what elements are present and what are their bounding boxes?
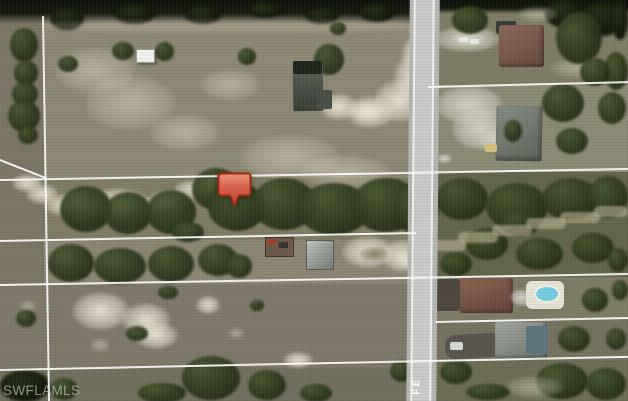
tree-blob — [582, 288, 608, 312]
lanai-structure — [526, 326, 548, 354]
house-roof — [293, 61, 322, 74]
tree-blob — [138, 383, 186, 401]
driveway — [350, 102, 384, 120]
sand-patch — [518, 6, 558, 22]
road-surface — [410, 0, 435, 401]
tree-blob — [440, 360, 472, 384]
house-roof — [460, 278, 513, 313]
dirt-trail — [594, 206, 628, 217]
tree-blob — [58, 56, 78, 72]
tree-blob — [226, 254, 252, 278]
driveway-island — [360, 247, 388, 261]
tree-blob — [238, 48, 256, 65]
tree-blob — [608, 248, 628, 272]
tree-blob — [452, 6, 488, 34]
tree-blob — [158, 286, 178, 299]
tree-blob — [504, 120, 522, 142]
tree-blob — [300, 384, 332, 401]
shed — [136, 49, 155, 63]
sand-patch — [228, 328, 244, 339]
tree-blob — [104, 192, 152, 234]
parked-vehicle — [485, 144, 497, 152]
house-roof — [306, 240, 334, 270]
main-road: FE — [406, 0, 440, 401]
tree-blob — [172, 222, 204, 242]
tree-blob — [94, 248, 146, 284]
swimming-pool — [534, 285, 560, 303]
sand-patch — [200, 70, 260, 100]
tree-blob — [10, 28, 38, 62]
tree-blob — [330, 22, 346, 35]
house-roof — [317, 90, 332, 109]
parked-vehicle — [268, 239, 275, 244]
tree-blob — [440, 252, 472, 276]
tree-blob — [126, 326, 148, 341]
tree-blob — [436, 178, 488, 220]
tree-canopy — [612, 0, 628, 40]
tree-blob — [16, 310, 36, 327]
tree-blob — [148, 246, 194, 282]
parked-vehicle — [470, 39, 479, 44]
tree-blob — [466, 384, 510, 400]
tree-blob — [556, 128, 588, 154]
tree-blob — [598, 92, 626, 124]
tree-blob — [182, 356, 240, 400]
tree-blob — [112, 42, 134, 60]
watermark: SWFLAMLS — [3, 383, 80, 398]
tree-blob — [155, 42, 174, 61]
pale-grass-strip — [44, 20, 416, 32]
tree-blob — [558, 326, 590, 352]
lanai-structure — [436, 279, 460, 311]
map-pin-icon[interactable] — [217, 171, 252, 211]
tree-canopy — [360, 4, 394, 22]
tree-blob — [586, 368, 626, 400]
tree-blob — [556, 12, 602, 64]
tree-blob — [516, 238, 563, 270]
sand-patch — [437, 154, 452, 163]
tree-blob — [612, 280, 628, 300]
tree-blob — [48, 244, 94, 282]
shed-shadow — [279, 242, 288, 248]
sand-patch — [90, 338, 110, 352]
tree-blob — [542, 84, 584, 122]
sand-patch — [283, 352, 313, 368]
street-name-label: FE — [411, 378, 429, 395]
sand-patch — [196, 296, 220, 314]
parked-vehicle — [459, 37, 468, 42]
tree-blob — [248, 370, 286, 400]
sand-patch — [506, 376, 564, 398]
house-roof — [499, 25, 544, 67]
tree-blob — [606, 328, 626, 350]
tree-blob — [18, 126, 38, 144]
aerial-map-view[interactable]: FE SWFLAMLS — [0, 0, 628, 401]
parked-vehicle — [450, 342, 463, 350]
tree-blob — [250, 300, 264, 311]
sand-patch — [150, 115, 220, 150]
tree-canopy — [250, 2, 280, 18]
driveway — [452, 32, 486, 46]
sand-patch — [72, 292, 130, 330]
